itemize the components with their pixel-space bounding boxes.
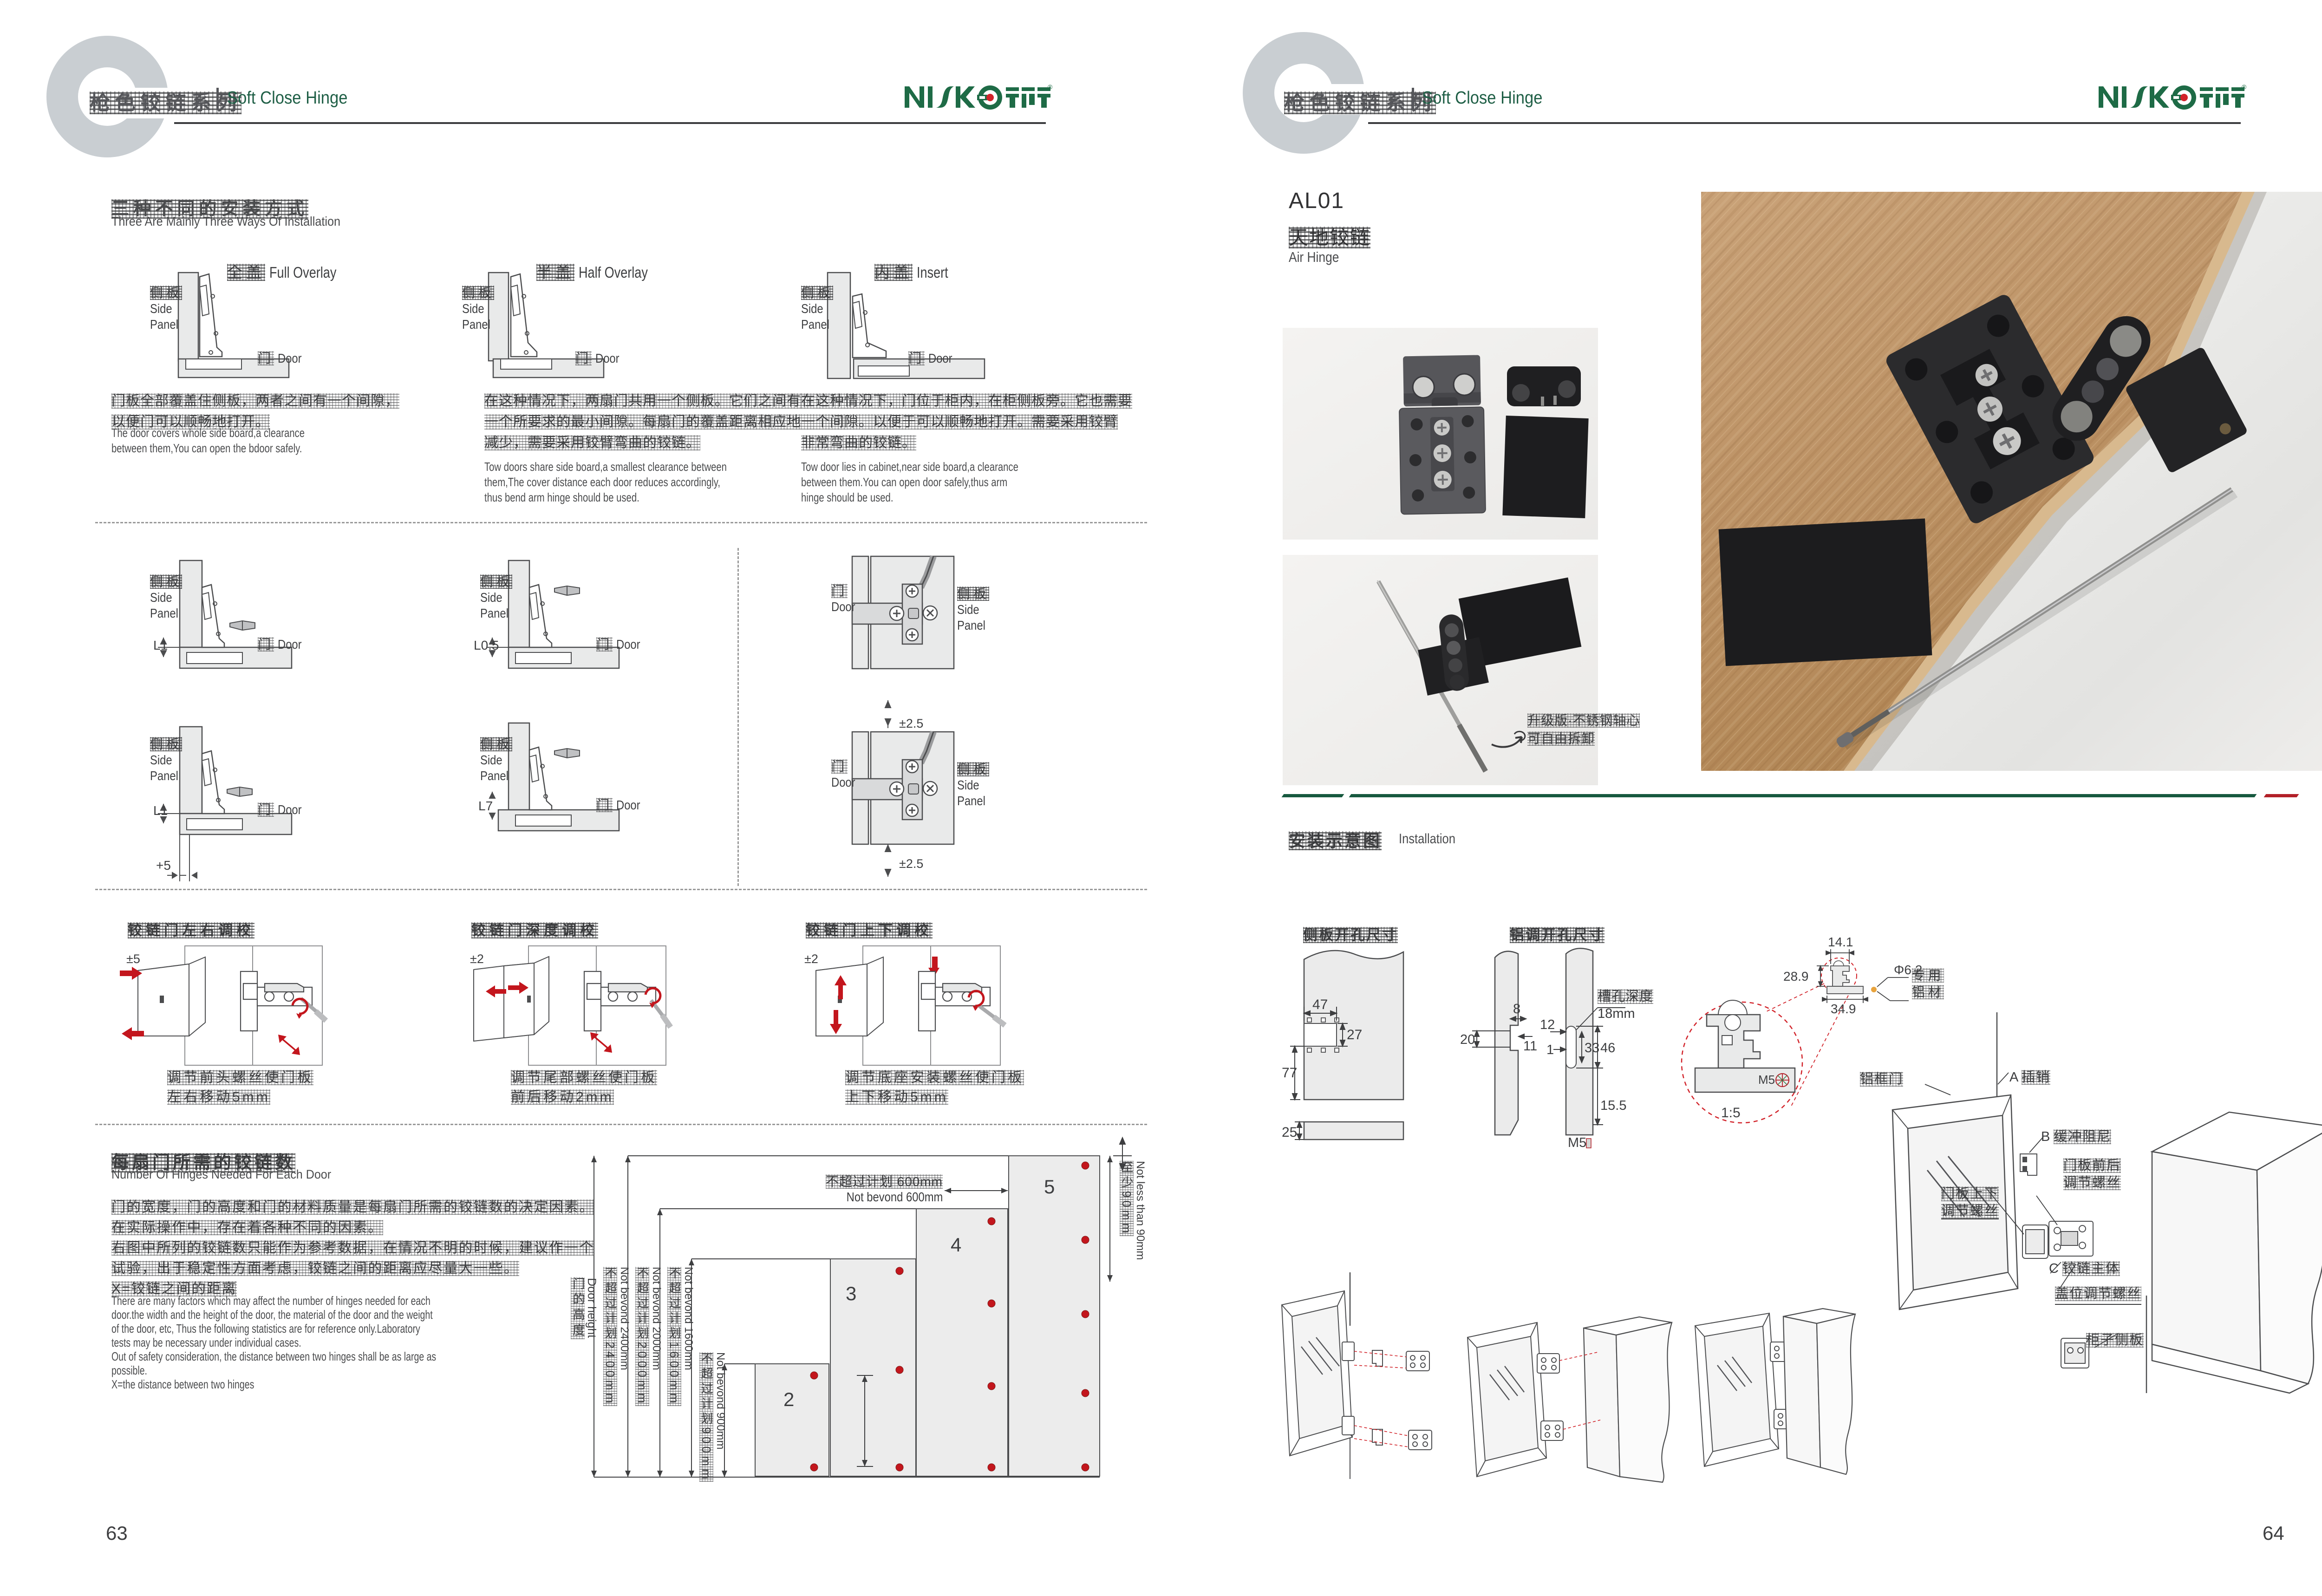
svg-text:33: 33 (1585, 1041, 1599, 1055)
svg-text:®: ® (2242, 84, 2246, 91)
svg-text:14.1: 14.1 (1828, 935, 1853, 949)
svg-text:8: 8 (1513, 1002, 1520, 1016)
svg-text:77: 77 (1282, 1065, 1297, 1081)
svg-text:28.9: 28.9 (1783, 969, 1809, 984)
svg-text:2: 2 (783, 1388, 794, 1410)
svg-text:1: 1 (1546, 1042, 1554, 1057)
svg-text:15.5: 15.5 (1600, 1098, 1626, 1113)
svg-text:47: 47 (1312, 997, 1328, 1012)
svg-text:34.9: 34.9 (1831, 1002, 1856, 1016)
svg-text:25: 25 (1282, 1125, 1297, 1140)
svg-text:11: 11 (1523, 1039, 1537, 1054)
svg-text:46: 46 (1600, 1041, 1615, 1055)
svg-text:12: 12 (1540, 1017, 1555, 1032)
svg-text:27: 27 (1347, 1027, 1362, 1042)
svg-text:M5: M5 (1568, 1135, 1586, 1150)
svg-text:®: ® (1048, 84, 1052, 91)
svg-text:1:5: 1:5 (1721, 1105, 1741, 1120)
svg-text:4: 4 (951, 1234, 961, 1256)
svg-text:20: 20 (1460, 1032, 1475, 1047)
svg-text:5: 5 (1044, 1176, 1055, 1198)
svg-text:M5: M5 (1758, 1073, 1775, 1087)
svg-text:3: 3 (846, 1283, 856, 1304)
